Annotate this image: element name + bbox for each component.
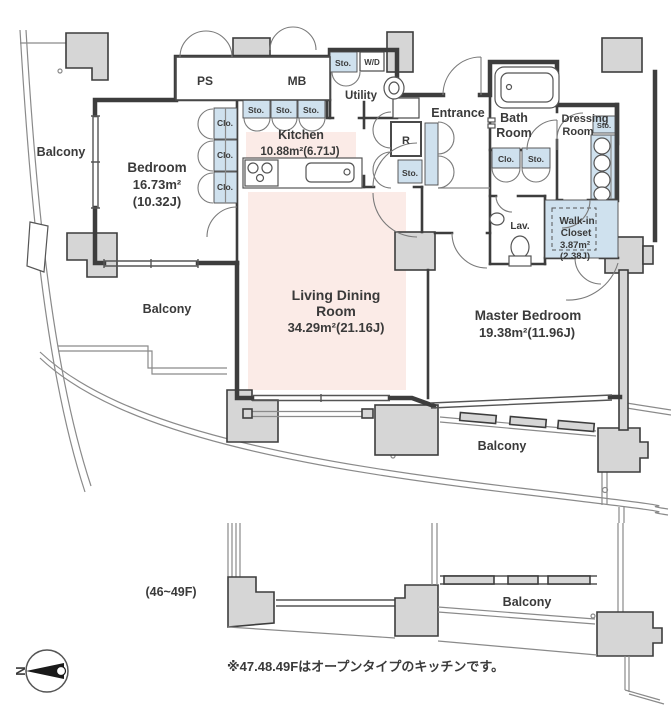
toilet xyxy=(511,236,529,258)
label-dressing-line2: Room xyxy=(562,126,593,138)
label-master-name: Master Bedroom xyxy=(475,308,582,323)
label-bedroom-area: 16.73m² xyxy=(133,177,182,192)
label-clo-1: Clo. xyxy=(217,118,233,128)
label-floor-range: (46~49F) xyxy=(145,585,196,599)
label-kitchen-note: ※47.48.49Fはオープンタイプのキッチンです。 xyxy=(227,659,504,674)
mini-plan xyxy=(228,507,664,704)
label-sto-kitchen-3: Sto. xyxy=(303,105,319,115)
label-sto-under-r: Sto. xyxy=(402,168,418,178)
label-clo-hall: Clo. xyxy=(498,154,514,164)
label-living-line1: Living Dining xyxy=(292,287,381,303)
label-bedroom-name: Bedroom xyxy=(127,160,186,175)
label-kitchen-area: 10.88m²(6.71J) xyxy=(260,146,339,158)
label-balcony-left: Balcony xyxy=(37,145,86,159)
label-sto-kitchen-2: Sto. xyxy=(276,105,292,115)
label-walkin-area: 3.87m² xyxy=(560,240,590,251)
label-entrance: Entrance xyxy=(431,106,485,120)
label-walkin-tatami: (2.38J) xyxy=(560,251,590,262)
bath-faucet-icon xyxy=(488,118,495,122)
label-kitchen-name: Kitchen xyxy=(278,128,324,142)
label-master-area: 19.38m²(11.96J) xyxy=(479,325,575,340)
label-mb: MB xyxy=(288,74,307,88)
label-sto-utility: Sto. xyxy=(335,58,351,68)
label-sto-kitchen-1: Sto. xyxy=(248,105,264,115)
label-r: R xyxy=(402,135,410,147)
entrance-door-arc xyxy=(443,57,481,95)
label-bedroom-tatami: (10.32J) xyxy=(133,194,181,209)
label-balcony-mid: Balcony xyxy=(143,302,192,316)
label-utility: Utility xyxy=(345,90,378,102)
compass-north-letter: N xyxy=(13,666,28,675)
label-living-area: 34.29m²(21.16J) xyxy=(288,320,385,335)
floorplan-svg: N Balcony Bedroom 16.73m² (10.32J) PS MB… xyxy=(0,0,671,726)
label-sto-hall: Sto. xyxy=(528,154,544,164)
label-balcony-bottom: Balcony xyxy=(478,439,527,453)
label-clo-2: Clo. xyxy=(217,150,233,160)
label-balcony-mini: Balcony xyxy=(503,595,552,609)
label-bath-line2: Room xyxy=(496,126,531,140)
label-lav: Lav. xyxy=(510,221,529,232)
label-bath-line1: Bath xyxy=(500,111,528,125)
label-wd: W/D xyxy=(364,58,380,67)
label-ps: PS xyxy=(197,74,213,88)
label-clo-3: Clo. xyxy=(217,182,233,192)
r-top-box xyxy=(393,98,419,118)
shoe-cabinet xyxy=(425,123,438,185)
balcony-corner-detail xyxy=(27,222,48,272)
compass: N xyxy=(13,650,68,692)
label-walkin-line2: Closet xyxy=(561,228,592,239)
floorplan-canvas: N Balcony Bedroom 16.73m² (10.32J) PS MB… xyxy=(0,0,671,726)
label-walkin-line1: Walk-in xyxy=(559,216,594,227)
lav-basin xyxy=(490,213,504,225)
label-sto-dressing: Sto. xyxy=(597,121,611,130)
label-living-line2: Room xyxy=(316,303,356,319)
